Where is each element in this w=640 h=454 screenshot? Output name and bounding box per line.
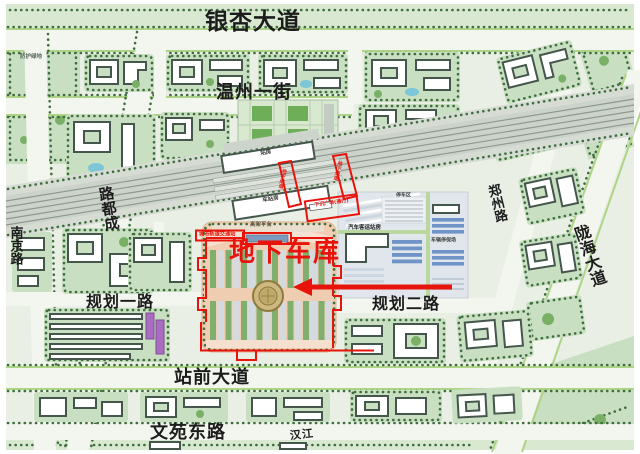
- bus-terminal-label: 汽车客运站房: [348, 225, 381, 231]
- slab-row-block: [44, 308, 170, 362]
- green-buffer-label: 防护绿地: [20, 54, 42, 60]
- road-label-guihua2: 规划二路: [372, 296, 440, 313]
- metro-station-label: 城市轨道交通站: [199, 232, 235, 237]
- road-label-wenyuan: 文苑东路: [150, 424, 226, 443]
- road-label-yinxing: 银杏大道: [205, 11, 301, 35]
- underground-garage-label: 地下车库: [229, 240, 341, 267]
- road-label-wenzhou: 温州一街: [216, 84, 292, 103]
- deck-label: 高架平台: [250, 222, 272, 228]
- bus-depot-label: 车辆停保场: [431, 238, 456, 243]
- site-plan: 银杏大道 温州一街 南京路 路都成 郑州路 陇海大道 规划一路 规划二路 站前大…: [0, 0, 640, 454]
- road-label-zhanqian: 站前大道: [174, 369, 250, 388]
- site-plan-graphic: [0, 0, 640, 454]
- road-label-nanjing: 南京路: [8, 226, 22, 265]
- road-label-guihua1: 规划一路: [86, 294, 154, 311]
- road-label-hanjiang: 汉江: [289, 428, 314, 442]
- parking-zone-label: 停车区: [396, 193, 411, 198]
